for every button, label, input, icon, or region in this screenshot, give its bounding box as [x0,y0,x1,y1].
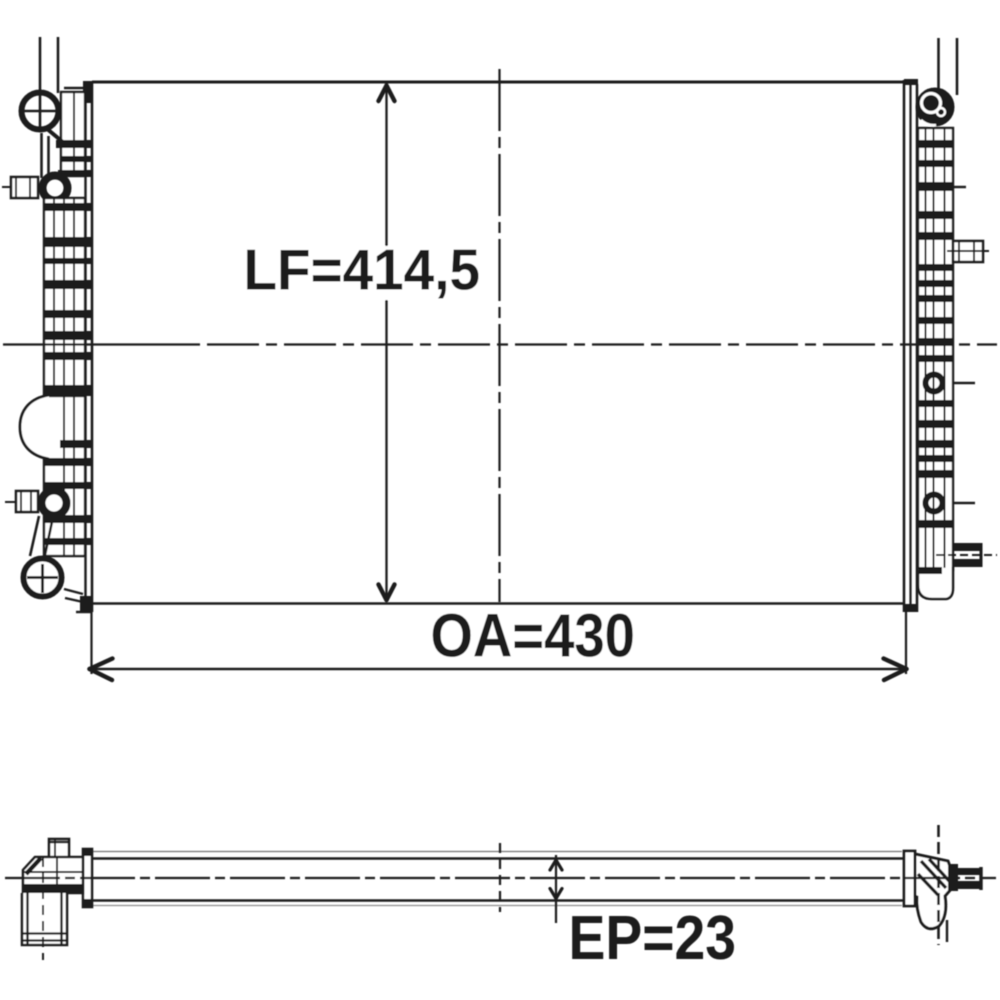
svg-text:EP=23: EP=23 [569,904,737,973]
svg-text:OA=430: OA=430 [431,601,636,669]
svg-text:LF=414,5: LF=414,5 [244,238,481,302]
